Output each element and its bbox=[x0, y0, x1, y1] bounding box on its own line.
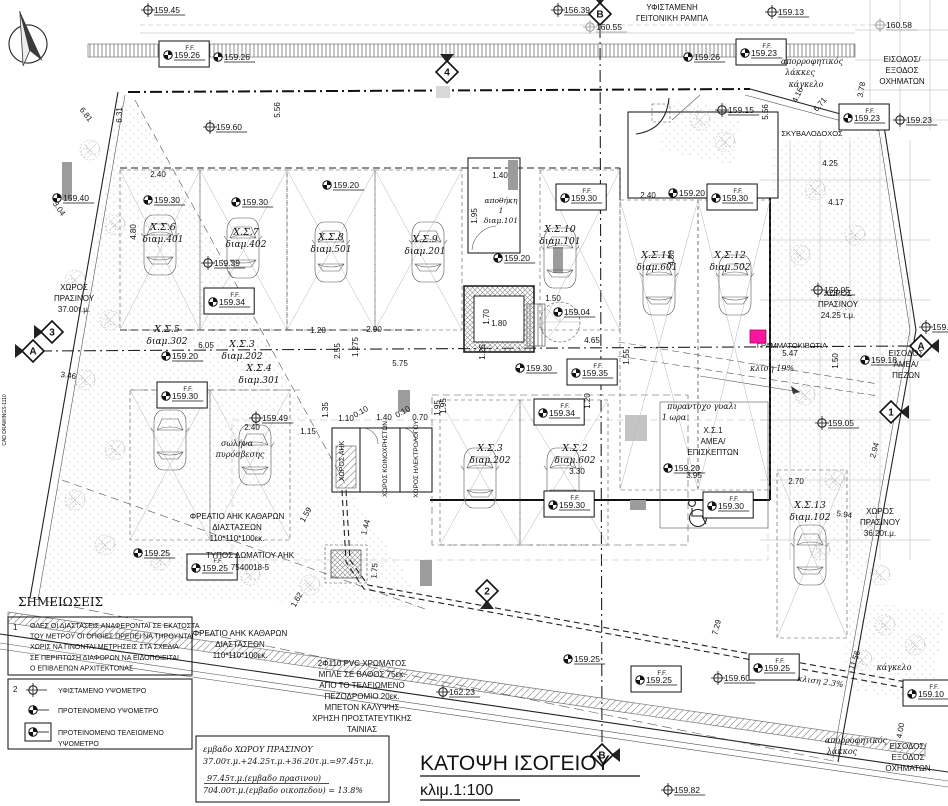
dimension: 1.95 bbox=[433, 400, 442, 416]
elevation-marker-e: 159.23 bbox=[893, 113, 937, 127]
area-summary-line: 37.00τ.μ.+24.25τ.μ.+36.20τ.μ.=97.45τ.μ. bbox=[203, 757, 374, 766]
annotation: ΕΠΙΣΚΕΠΤΩΝ bbox=[687, 448, 738, 457]
annotation: ΑΜΕΑ/ bbox=[701, 437, 727, 446]
annotation: ΧΩΡΟΣ bbox=[824, 289, 852, 298]
stall-apartment: διαμ.501 bbox=[311, 245, 352, 255]
elevation-value: 159.30 bbox=[526, 363, 552, 373]
marker-letter: 2 bbox=[484, 587, 490, 598]
elevation-value: 159.20 bbox=[504, 253, 530, 263]
stall-id: Χ.Σ.3 bbox=[228, 339, 255, 350]
annotation: ΕΙΣΟΔΟΣ/ bbox=[889, 742, 927, 751]
annotation: πυραντοχο γυαλι bbox=[666, 402, 737, 411]
elevation-value: 162.23 bbox=[449, 687, 475, 697]
elevation-marker-f: F.F.159.10 bbox=[903, 680, 948, 706]
dimension: 1.70 bbox=[482, 309, 491, 325]
legend-label: ΥΨΟΜΕΤΡΟ bbox=[58, 741, 99, 748]
annotation: απορροφητικός bbox=[825, 736, 888, 745]
elevation-marker-e: 159.60 bbox=[203, 120, 247, 134]
ahk-manhole bbox=[325, 545, 367, 583]
elevation-marker-f: F.F.159.25 bbox=[749, 654, 799, 680]
dimension: 4.65 bbox=[584, 336, 600, 345]
dimension: 1.275 bbox=[351, 336, 360, 357]
dimension: 1.50 bbox=[545, 294, 561, 303]
annotation: ΑΠΟ ΤΟ ΤΕΛΕΙΩΜΕΝΟ bbox=[319, 681, 405, 690]
stall-apartment: διαμ.301 bbox=[239, 376, 280, 386]
elevation-value: 159.34 bbox=[219, 297, 245, 307]
stall-id: Χ.Σ.3 bbox=[476, 443, 503, 454]
elevation-marker-f: F.F.159.30 bbox=[707, 184, 757, 210]
elevation-marker-p: 159.20 bbox=[162, 351, 203, 361]
elevation-value: 159.23 bbox=[751, 48, 777, 58]
parking-stall-label: Χ.Σ.12διαμ.502 bbox=[710, 250, 751, 273]
elevation-value: 159.23 bbox=[906, 115, 932, 125]
elevation-marker-f: F.F.159.26 bbox=[159, 41, 209, 67]
parking-stall-label: Χ.Σ.7διαμ.402 bbox=[226, 227, 267, 250]
annotation: 37.00τ.μ. bbox=[58, 305, 90, 314]
dimension: 3.95 bbox=[686, 471, 702, 480]
dimension: 4.17 bbox=[828, 198, 844, 207]
parking-stall-label: Χ.Σ.9διαμ.201 bbox=[405, 234, 446, 257]
elevation-value: 159.30 bbox=[242, 197, 268, 207]
dimension: 1.50 bbox=[831, 353, 840, 369]
parking-stall bbox=[440, 400, 520, 545]
elevation-value: 159.34 bbox=[549, 408, 575, 418]
dimension: 4.25 bbox=[822, 159, 838, 168]
annotation: ΠΡΑΣΙΝΟΥ bbox=[818, 300, 859, 309]
annotation: ΕΙΣΟΔΟΣ/ bbox=[883, 55, 921, 64]
elevation-value: 159.25 bbox=[202, 563, 228, 573]
dimension: 1.40 bbox=[492, 171, 508, 180]
annotation: ΕΞΟΔΟΣ bbox=[892, 753, 925, 762]
drawing-scale: κλιμ.1:100 bbox=[420, 782, 493, 799]
elevation-value: 159.30 bbox=[718, 501, 744, 511]
floor-plan-page: 159.45156.39159.13160.55160.58F.F.159.26… bbox=[0, 0, 948, 806]
dimension: 1.10 bbox=[338, 414, 354, 423]
dimension: 1.75 bbox=[369, 562, 379, 579]
parking-stall-label: Χ.Σ.8διαμ.501 bbox=[311, 232, 352, 255]
stall-apartment: διαμ.601 bbox=[637, 263, 678, 273]
note-line: ΣΕ ΠΕΡΙΠΤΩΣΗ ΔΙΑΦΟΡΩΝ ΝΑ ΕΙΔΟΠΟΙΕΙΤΑΙ bbox=[30, 655, 179, 662]
elevation-marker-f: F.F.159.25 bbox=[631, 666, 681, 692]
dimension: 1.80 bbox=[491, 319, 507, 328]
elevation-value: 159.30 bbox=[722, 193, 748, 203]
dimension: 5.56 bbox=[273, 102, 282, 118]
annotation: ΤΑΙΝΙΑΣ bbox=[347, 725, 377, 734]
elevation-marker-e: 159.15 bbox=[715, 103, 759, 117]
stall-apartment: διαμ.602 bbox=[555, 456, 596, 466]
elevation-value: 159.30 bbox=[571, 193, 597, 203]
annotation: CAD DRAWINGS-1110 bbox=[2, 394, 8, 446]
note-line: ΤΟΥ ΜΕΤΡΟΥ ΟΙ ΟΠΟΙΕΣ ΠΡΕΠΕΙ ΝΑ ΤΗΡΟΥΝΤΑΙ bbox=[30, 634, 194, 641]
annotation: 36.20τ.μ. bbox=[864, 529, 896, 538]
elevation-value: 159.30 bbox=[559, 500, 585, 510]
dimension: 2.40 bbox=[640, 191, 656, 200]
elevation-marker-f: F.F.159.30 bbox=[157, 382, 207, 408]
annotation: ΧΩΡΟΣ ΑΗΚ bbox=[339, 441, 346, 482]
elevation-marker-p: 159.26 bbox=[214, 52, 255, 62]
stall-id: Χ.Σ.8 bbox=[317, 232, 344, 243]
elevation-value: 159.40 bbox=[63, 193, 89, 203]
elevation-value: 159.25 bbox=[144, 548, 170, 558]
elevation-value: 159.39 bbox=[214, 258, 240, 268]
stall-id: Χ.Σ.9 bbox=[411, 234, 438, 245]
stall-id: Χ.Σ.7 bbox=[232, 227, 260, 238]
stall-apartment: διαμ.201 bbox=[405, 247, 446, 257]
annotation: 1 ωρα bbox=[662, 413, 687, 422]
elevation-value: 159.30 bbox=[154, 195, 180, 205]
annotation: ΧΩΡΟΣ ΗΛΕΚΤΡΟΛΟΓΟΥ bbox=[413, 420, 420, 498]
elevation-marker-e: 159.17 bbox=[919, 320, 948, 334]
annotation: ΠΡΑΣΙΝΟΥ bbox=[54, 294, 95, 303]
dimension: 5.56 bbox=[761, 104, 770, 120]
stall-id: Χ.Σ.5 bbox=[153, 324, 180, 335]
section-marker-A: A bbox=[15, 340, 44, 362]
elevation-marker-e: 159.45 bbox=[141, 3, 185, 17]
dimension: 3.30 bbox=[569, 467, 585, 476]
annotation: ΠΕΖΟΔΡΟΜΙΟ 20εκ. bbox=[325, 692, 400, 701]
stall-id: Χ.Σ.2 bbox=[561, 443, 588, 454]
elevation-marker-e: 160.58 bbox=[873, 18, 917, 32]
annotation: ΔΙΑΣΤΑΣΕΩΝ bbox=[215, 640, 265, 649]
annotation: κάγκελο bbox=[876, 663, 912, 672]
annotation: 2Φ110 PVC ΧΡΩΜΑΤΟΣ bbox=[318, 659, 407, 668]
elevation-value: 159.04 bbox=[564, 307, 590, 317]
elevation-value: 159.25 bbox=[646, 675, 672, 685]
annotation: 110*110*100εκ. bbox=[210, 534, 265, 543]
stall-id: Χ.Σ.6 bbox=[149, 222, 176, 233]
annotation: 24.25 τ.μ. bbox=[821, 311, 855, 320]
elevation-marker-f: F.F.159.34 bbox=[204, 288, 254, 314]
floor-plan-canvas: 159.45156.39159.13160.55160.58F.F.159.26… bbox=[0, 0, 948, 806]
dimension: 0.10 bbox=[352, 404, 370, 420]
annotation: ΧΩΡΟΣ ΚΟΙΝΟΧΡΗΣΤΩΝ bbox=[382, 421, 389, 497]
dimension: 2.70 bbox=[788, 477, 804, 486]
annotation: ΠΕΖΩΝ bbox=[892, 371, 920, 380]
elevation-marker-p: 159.04 bbox=[554, 307, 595, 317]
stall-id: Χ.Σ.13 bbox=[793, 500, 826, 511]
legend-symbol-f bbox=[25, 723, 51, 741]
elevation-value: 159.05 bbox=[828, 418, 854, 428]
dimension: 5.47 bbox=[782, 349, 798, 358]
annotation: λάκκος bbox=[826, 747, 858, 756]
elevation-value: 159.17 bbox=[932, 322, 948, 332]
annotation: 7540018-5 bbox=[231, 563, 270, 572]
dimension: 1.95 bbox=[470, 208, 479, 224]
elevation-value: 159.26 bbox=[694, 52, 720, 62]
stall-apartment: διαμ.402 bbox=[226, 240, 267, 250]
elevation-marker-e: 159.39 bbox=[201, 256, 245, 270]
annotation: ΧΡΗΣΗ ΠΡΟΣΤΑΤΕΥΤΙΚΗΣ bbox=[312, 714, 411, 723]
elevation-value: 159.49 bbox=[262, 413, 288, 423]
elevation-marker-e: 159.05 bbox=[815, 416, 859, 430]
section-marker-4: 4 bbox=[436, 54, 458, 83]
annotation: ΕΞΟΔΟΣ bbox=[886, 66, 919, 75]
annotation: σωλήνα bbox=[221, 439, 254, 448]
elevation-value: 159.45 bbox=[154, 5, 180, 15]
dimension: 4.00 bbox=[895, 722, 907, 739]
elevation-value: 159.82 bbox=[674, 785, 700, 795]
note-line: ΟΛΕΣ ΟΙ ΔΙΑΣΤΑΣΕΙΣ ΑΝΑΦΕΡΟΝΤΑΙ ΣΕ ΕΚΑΤΟΣ… bbox=[30, 623, 200, 630]
stall-id: Χ.Σ.10 bbox=[543, 224, 576, 235]
annotation: λάκκες bbox=[784, 68, 815, 77]
elevation-marker-e: 162.23 bbox=[436, 685, 480, 699]
marker-letter: 1 bbox=[888, 408, 894, 419]
elevation-marker-p: 159.20 bbox=[494, 253, 535, 263]
elevation-value: 159.15 bbox=[728, 105, 754, 115]
area-summary-line: 704.00τ.μ.(εμβαδο οικοπεδου) = 13.8% bbox=[203, 786, 363, 795]
dimension: 1.20 bbox=[310, 326, 326, 335]
elevation-marker-p: 159.20 bbox=[669, 188, 710, 198]
annotation: ΧΩΡΟΣ bbox=[60, 283, 88, 292]
dimension: 1.20 bbox=[583, 393, 592, 409]
annotation: πυρόσβεσης bbox=[215, 450, 265, 459]
parking-stall-label: Χ.Σ.10διαμ.101 bbox=[540, 224, 581, 247]
elevation-marker-p: 159.20 bbox=[323, 180, 364, 190]
elevation-value: 159.20 bbox=[172, 351, 198, 361]
elevation-value: 159.25 bbox=[764, 663, 790, 673]
annotation: 110*110*100εκ. bbox=[213, 651, 268, 660]
elevation-marker-f: F.F.159.34 bbox=[534, 399, 584, 425]
elevation-value: 159.26 bbox=[174, 50, 200, 60]
annotation: ΕΙΣΟΔΟΣ bbox=[889, 349, 924, 358]
elevation-marker-p: 159.30 bbox=[516, 363, 557, 373]
stall-apartment: διαμ.202 bbox=[222, 352, 263, 362]
elevation-marker-e: 156.39 bbox=[551, 3, 595, 17]
elevation-marker-f: F.F.159.35 bbox=[567, 359, 617, 385]
stall-apartment: διαμ.101 bbox=[540, 237, 581, 247]
elevation-marker-e: 159.82 bbox=[661, 783, 705, 797]
area-summary-line: εμβαδο ΧΩΡΟΥ ΠΡΑΣΙΝΟΥ bbox=[203, 745, 313, 754]
stall-apartment: διαμ.302 bbox=[147, 337, 188, 347]
dimension: 1.25 bbox=[478, 344, 487, 360]
section-marker-3: 3 bbox=[34, 321, 63, 343]
elevation-value: 159.20 bbox=[679, 188, 705, 198]
annotation: κάγκελο bbox=[788, 80, 824, 89]
elevation-value: 159.13 bbox=[778, 7, 804, 17]
legend-label: ΥΦΙΣΤΑΜΕΝΟ ΥΨΟΜΕΤΡΟ bbox=[58, 688, 147, 695]
elevation-value: 159.60 bbox=[216, 122, 242, 132]
elevation-marker-p: 159.25 bbox=[134, 548, 175, 558]
legend-label: ΠΡΟΤΕΙΝΟΜΕΝΟ ΤΕΛΕΙΩΜΕΝΟ bbox=[58, 730, 164, 737]
area-summary-line: 97.45τ.μ.(εμβαδο πρασινου) bbox=[207, 774, 321, 783]
elevation-marker-p: 159.30 bbox=[144, 195, 185, 205]
annotation: ΓΡΑΜΜΑΤΟΚΙΒΩΤΙΑ bbox=[757, 341, 827, 350]
annotation: ΜΠΕΤΟΝ ΚΑΛΥΨΗΣ bbox=[325, 703, 400, 712]
note-number: 1 bbox=[13, 623, 18, 632]
marker-letter: 4 bbox=[444, 68, 450, 79]
elevation-marker-e: 159.13 bbox=[765, 5, 809, 19]
elevation-marker-f: F.F.159.30 bbox=[544, 491, 594, 517]
annotation: 1 bbox=[499, 206, 504, 215]
dimension: 2.40 bbox=[244, 423, 260, 432]
dimension: 2.90 bbox=[366, 325, 382, 334]
annotation: ΟΧΗΜΑΤΩΝ bbox=[879, 77, 924, 86]
elevation-marker-f: F.F.159.30 bbox=[703, 492, 753, 518]
stall-id: Χ.Σ.12 bbox=[713, 250, 746, 261]
dimension: 1.35 bbox=[321, 402, 330, 418]
marker-letter: A bbox=[29, 347, 36, 358]
dimension: 6.31 bbox=[115, 107, 124, 123]
elevation-value: 156.39 bbox=[564, 5, 590, 15]
notes-heading: ΣΗΜΕΙΩΣΕΙΣ bbox=[18, 595, 103, 609]
elevation-marker-f: F.F.159.23 bbox=[839, 104, 889, 130]
dimension: 2.40 bbox=[150, 170, 166, 179]
elevation-marker-p: 159.30 bbox=[232, 197, 273, 207]
north-compass bbox=[1, 6, 51, 68]
annotation: ΦΡΕΑΤΙΟ ΑΗΚ ΚΑΘΑΡΩΝ bbox=[190, 512, 285, 521]
annotation: ΔΙΑΣΤΑΣΕΩΝ bbox=[212, 523, 262, 532]
dimension: 1.15 bbox=[300, 427, 316, 436]
annotation: αποθήκη bbox=[485, 196, 518, 205]
annotation: απορροφητικός bbox=[781, 57, 844, 66]
annotation: ΦΡΕΑΤΙΟ ΑΗΚ ΚΑΘΑΡΩΝ bbox=[193, 629, 288, 638]
annotation: ΑΜΕΑ/ bbox=[894, 360, 920, 369]
annotation: Χ.Σ.1 bbox=[703, 426, 723, 435]
elevation-value: 159.23 bbox=[854, 113, 880, 123]
elevation-value: 159.20 bbox=[333, 180, 359, 190]
drawing-title: ΚΑΤΟΨΗ ΙΣΟΓΕΙΟΥ bbox=[420, 752, 610, 775]
note-line: Ο ΕΠΙΒΛΕΠΩΝ ΑΡΧΙΤΕΚΤΟΝΑΣ bbox=[30, 665, 134, 672]
elevation-marker-f: F.F.159.30 bbox=[556, 184, 606, 210]
dimension: 2.55 bbox=[333, 343, 342, 359]
annotation: ΓΕΙΤΟΝΙΚΗ ΡΑΜΠΑ bbox=[636, 14, 709, 23]
stall-apartment: διαμ.202 bbox=[470, 456, 511, 466]
elevation-value: 159.10 bbox=[918, 689, 944, 699]
annotation: ΠΡΑΣΙΝΟΥ bbox=[860, 518, 901, 527]
elevation-marker-p: 159.25 bbox=[564, 654, 605, 664]
dimension: 4.80 bbox=[129, 224, 138, 240]
annotation: ΣΚΥΒΑΛΟΔΟΧΟΣ bbox=[781, 129, 843, 138]
legend-label: ΠΡΟΤΕΙΝΟΜΕΝΟ ΥΨΟΜΕΤΡΟ bbox=[58, 708, 159, 715]
note-line: ΧΩΡΙΣ ΝΑ ΓΙΝΟΝΤΑΙ ΜΕΤΡΗΣΕΙΣ ΣΤΑ ΣΧΕΔΙΑ bbox=[30, 644, 179, 651]
elevation-value: 159.60 bbox=[724, 673, 750, 683]
elevation-value: 159.30 bbox=[172, 391, 198, 401]
stall-apartment: διαμ.502 bbox=[710, 263, 751, 273]
elevation-value: 159.35 bbox=[582, 368, 608, 378]
marker-letter: B bbox=[596, 10, 603, 21]
dimension: 1.55 bbox=[622, 349, 631, 365]
annotation: διαμ.101 bbox=[484, 216, 518, 225]
annotation: ΜΠΛΕ ΣΕ ΒΑΘΟΣ 75εκ. bbox=[319, 670, 406, 679]
parking-stall bbox=[620, 200, 698, 490]
elevation-marker-e: 160.55 bbox=[583, 20, 627, 34]
elevation-marker-f: F.F.159.23 bbox=[736, 39, 786, 65]
stall-id: Χ.Σ.4 bbox=[245, 363, 272, 374]
dimension: 6.05 bbox=[198, 341, 214, 350]
legend-symbol-p bbox=[29, 706, 49, 714]
dimension: 6.81 bbox=[78, 106, 95, 124]
stall-apartment: διαμ.401 bbox=[143, 235, 184, 245]
dimension: 7.29 bbox=[710, 618, 723, 636]
dimension: 1.40 bbox=[376, 413, 392, 422]
annotation: ΤΥΠΟΣ ΔΩΜΑΤΙΟΥ ΑΗΚ bbox=[206, 551, 295, 560]
annotation: ΟΧΗΜΑΤΩΝ bbox=[885, 764, 930, 773]
dimension: 3.78 bbox=[856, 81, 868, 98]
elevation-value: 159.26 bbox=[224, 52, 250, 62]
elevation-value: 159.25 bbox=[574, 654, 600, 664]
elevation-value: 160.58 bbox=[886, 20, 912, 30]
dimension: 5.75 bbox=[392, 359, 408, 368]
stall-id: Χ.Σ.11 bbox=[640, 250, 673, 261]
stall-apartment: διαμ.102 bbox=[790, 513, 831, 523]
marker-letter: 3 bbox=[49, 328, 55, 339]
note-number: 2 bbox=[13, 685, 18, 694]
annotation: ΥΦΙΣΤΑΜΕΝΗ bbox=[646, 3, 698, 12]
legend-symbol-e bbox=[26, 683, 47, 697]
annotation: κλίση 19% bbox=[749, 364, 794, 373]
annotation: ΧΩΡΟΣ bbox=[866, 507, 894, 516]
elevation-marker-p: 159.26 bbox=[684, 52, 725, 62]
dimension: 3.46 bbox=[60, 370, 77, 381]
